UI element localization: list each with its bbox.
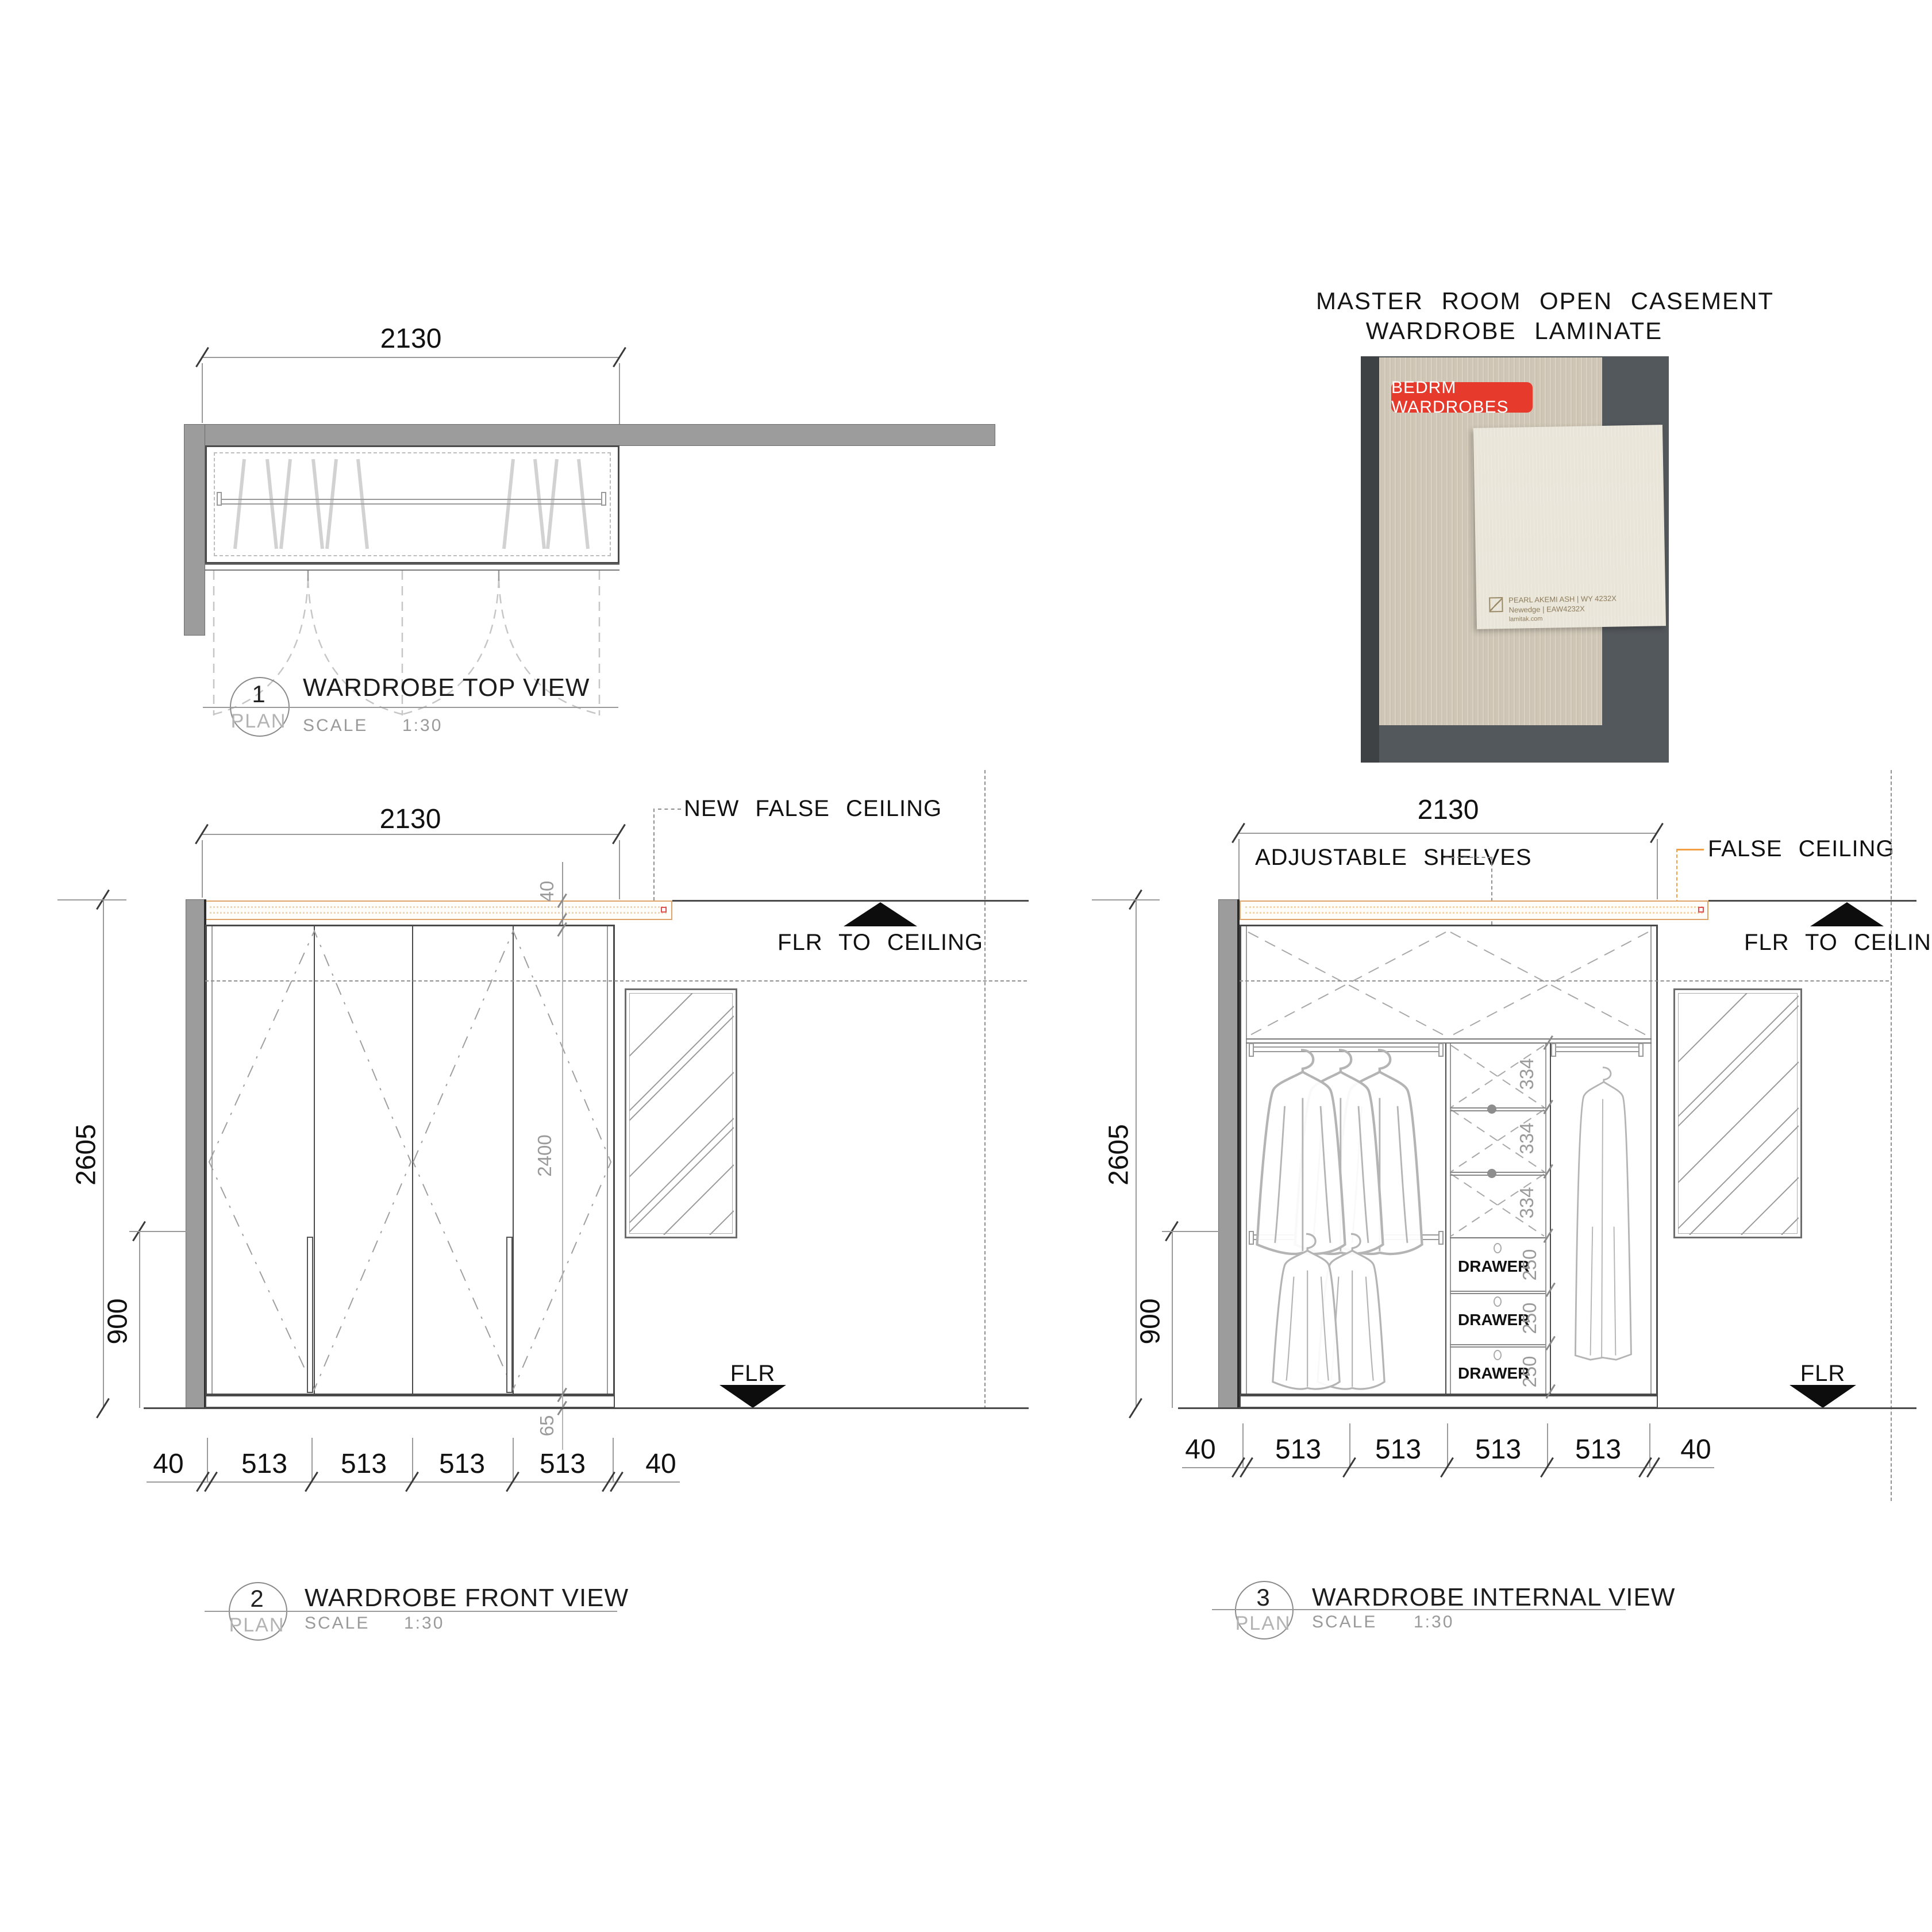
brand-cube-icon [1489,597,1503,612]
ceiling-line [672,900,1029,902]
shelf-pin [1487,1169,1496,1178]
rod-bracket [217,492,222,506]
bedrm-wardrobes-badge: BEDRM WARDROBES [1391,382,1533,413]
rod-bracket [1249,1231,1254,1245]
plan-label: PLAN [229,1614,285,1637]
sample-text-line3: lamitak.com [1509,614,1543,625]
mirror-hatch [1678,993,1799,1235]
dim-ext [129,1231,187,1232]
drawer-knob [1494,1350,1502,1360]
mirror-hatch [629,993,734,1235]
title-rule [203,707,618,708]
floor-line [144,1407,1029,1409]
dim-ext [1349,1423,1350,1467]
bottom-dim: 513 [1255,1434,1341,1465]
dim-ext [1447,1423,1448,1467]
hanging-coat [1552,1041,1648,1393]
dim-ext [513,1438,514,1481]
flr-to-ceiling-label: FLR TO CEILING [765,930,995,956]
rod-bracket [1249,1043,1254,1057]
dim-ext [1092,899,1160,900]
bottom-dim: 513 [321,1448,407,1480]
hanging-dresses-lower [1254,1230,1444,1395]
bottom-dim: 513 [1455,1434,1541,1465]
leader [1445,857,1491,858]
wall-top [184,424,995,446]
front-rod-height-dim: 900 [102,1247,134,1396]
dim-ext [619,840,620,899]
drawer-knob [1494,1243,1502,1253]
closet-rod [218,499,606,505]
orig-ceiling-dashed-line [205,980,1027,982]
plan-label: PLAN [230,710,287,733]
dim-ext [202,363,203,423]
dim-ext [57,899,126,900]
dim-line [562,1395,563,1450]
scale-value: 1:30 [404,1614,444,1633]
red-marker [661,907,667,913]
leader-orange [1676,849,1704,850]
flr-label: FLR [695,1361,810,1387]
plan-label: PLAN [1235,1612,1291,1635]
scale-label: SCALE [305,1614,370,1633]
stone-strip [1361,356,1379,763]
drawer-dim: 250 [1519,1297,1541,1446]
wall-left [184,424,205,636]
dim-ext [1162,1231,1219,1232]
dim-line [1182,1467,1714,1468]
bottom-dim: 513 [519,1448,606,1480]
bottom-dim: 513 [1555,1434,1641,1465]
ceiling-line [1708,900,1916,902]
front-width-dim: 2130 [324,803,497,835]
shelf-pin [1487,1104,1496,1114]
flr-to-ceiling-triangle [1810,902,1884,926]
partition [1545,1044,1546,1394]
floor-line [1178,1407,1916,1409]
false-ceiling-band [1240,900,1708,920]
bottom-dim: 40 [1653,1434,1739,1465]
door-handle [506,1237,513,1393]
sample-text-line2: Newedge | EAW4232X [1508,604,1585,615]
bottom-dim: 40 [1157,1434,1244,1465]
dim-ext [1238,839,1240,899]
dim-ext [202,840,203,898]
flr-label: FLR [1765,1361,1880,1387]
dim-line [139,1231,140,1408]
wall-left [1218,899,1238,1408]
leader [658,809,681,810]
view-number: 3 [1235,1584,1291,1611]
dim-line [562,927,563,1395]
dim-ext [1547,1423,1548,1467]
plinth [1240,1395,1658,1408]
view-number: 2 [229,1585,285,1612]
dim-line [202,357,619,358]
photo-title-line1: MASTER ROOM OPEN CASEMENT [1316,287,1712,315]
bottom-dim: 513 [221,1448,307,1480]
leader [653,809,655,900]
leader-orange [1676,849,1677,903]
laminate-sample-small: PEARL AKEMI ASH | WY 4232X Newedge | EAW… [1473,425,1666,629]
flr-to-ceiling-triangle [844,902,917,926]
scale-value: 1:30 [1414,1612,1454,1632]
dim-ext [1657,839,1658,899]
sample-text-line1: PEARL AKEMI ASH | WY 4232X [1508,594,1617,605]
view-title: WARDROBE INTERNAL VIEW [1312,1583,1675,1612]
top-xbrace [1246,930,1652,1038]
rod-bracket [601,492,606,506]
dim-ext [311,1438,313,1481]
door-height-dim: 2400 [534,1081,556,1230]
dim-line [1172,1231,1173,1408]
dim-line [147,1481,680,1483]
view-number: 1 [230,680,287,708]
orig-ceiling-dashed-line [1240,980,1889,982]
flr-triangle [719,1385,786,1408]
wardrobe-internal [1240,925,1658,1395]
internal-rod-height-dim: 900 [1135,1247,1167,1396]
red-marker [1698,907,1704,913]
door-face-plan [205,564,619,571]
view-title: WARDROBE TOP VIEW [303,673,590,702]
false-ceiling-label: FALSE CEILING [1708,836,1895,862]
dim-line [1238,833,1657,834]
bottom-dim: 40 [618,1448,704,1480]
mirror-front [625,988,737,1238]
drawer-knob [1494,1296,1502,1307]
laminate-photo: PEARL AKEMI ASH | WY 4232X Newedge | EAW… [1361,356,1669,763]
wall-left [186,899,205,1408]
dim-ext [412,1438,413,1481]
scale-label: SCALE [303,716,368,736]
door-handle [307,1237,313,1393]
drawing-sheet: 2130 [0,0,1932,1932]
internal-width-dim: 2130 [1362,794,1534,826]
scale-label: SCALE [1312,1612,1377,1632]
scale-value: 1:30 [402,716,442,736]
bottom-dim: 513 [1355,1434,1441,1465]
front-height-dim: 2605 [71,1080,102,1230]
view-title: WARDROBE FRONT VIEW [305,1584,629,1612]
internal-height-dim: 2605 [1103,1080,1135,1230]
flr-triangle [1789,1385,1856,1408]
room-boundary-dashed [984,770,986,1409]
photo-title-line2: WARDROBE LAMINATE [1316,317,1712,345]
top-view-width-dim: 2130 [325,323,497,355]
partition [1445,1044,1446,1394]
false-ceiling-band [204,900,672,920]
mirror-internal [1673,988,1802,1238]
room-boundary-dashed [1891,770,1892,1501]
bottom-dim: 513 [419,1448,505,1480]
flr-to-ceiling-label: FLR TO CEILING [1732,930,1932,956]
bottom-dim: 40 [125,1448,211,1480]
new-false-ceiling-label: NEW FALSE CEILING [684,796,942,822]
